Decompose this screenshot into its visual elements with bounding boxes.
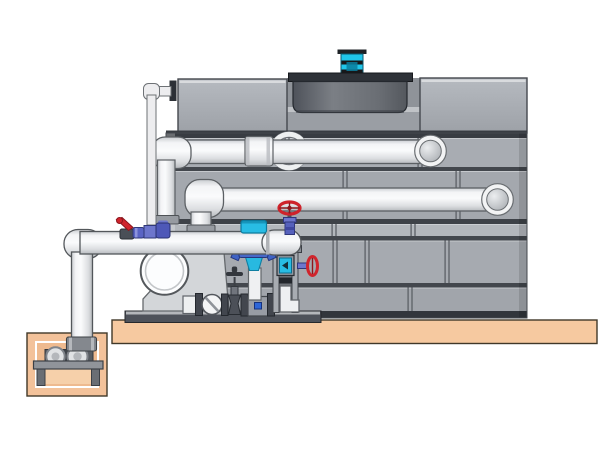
- fan-shroud: [293, 82, 407, 113]
- header-barrel: [80, 232, 280, 255]
- tower-upper-right-panel: [420, 78, 527, 133]
- handwheel-hub: [287, 206, 291, 210]
- fan-assembly: [289, 50, 413, 114]
- flange-c: [241, 294, 248, 316]
- cap-ridge: [266, 231, 270, 255]
- union-ridge-right: [267, 137, 271, 166]
- valve-stem: [234, 277, 236, 287]
- lower-pipe-barrel: [205, 188, 493, 211]
- upper-pipe-tank-elbow: [415, 135, 447, 167]
- lower-pipe-tank-elbow: [482, 184, 514, 216]
- seam-top: [166, 131, 527, 139]
- lip-1: [166, 138, 527, 139]
- sump-motor-hub: [52, 353, 60, 361]
- tower-upper-left-panel: [178, 79, 287, 133]
- elbow-dome: [420, 140, 442, 162]
- fitting-1-band: [135, 228, 138, 238]
- discharge-stub: [183, 296, 196, 314]
- coupling-ridge-r: [91, 338, 94, 351]
- seam-1: [166, 167, 527, 171]
- elbow-dome: [487, 189, 509, 211]
- cap-valve-waist: [285, 227, 295, 230]
- tap-handle-nub: [232, 267, 237, 273]
- coupling-ridge-l: [69, 338, 72, 351]
- diffuser-drop-pipe: [249, 268, 262, 300]
- motor-stripe-cyan-top: [341, 54, 363, 61]
- ground: [27, 320, 597, 396]
- platform-leg-right: [92, 369, 100, 386]
- sump-riser-pipe: [72, 252, 93, 344]
- fan-shroud-shadow: [296, 110, 404, 113]
- platform-leg-left: [37, 369, 45, 386]
- column-slot: [279, 278, 292, 284]
- tap-handle-bar: [226, 272, 243, 276]
- upper-left-highlight: [180, 81, 286, 84]
- gate-valve-body: [229, 295, 241, 315]
- fitting-3: [156, 223, 170, 238]
- riser-drop-1: [158, 160, 176, 218]
- motor-center: [347, 62, 358, 71]
- illustration-canvas: [0, 0, 600, 450]
- valve-bonnet: [231, 287, 238, 296]
- tee-indicator: [255, 303, 262, 310]
- ball-valve-body: [120, 229, 134, 239]
- lever-knob: [117, 218, 123, 224]
- actuator-cap-line: [241, 221, 267, 224]
- riser-drop-2: [191, 212, 211, 226]
- seam-2: [166, 219, 527, 224]
- lip-3: [166, 224, 527, 225]
- sump-pump-hub: [73, 352, 81, 360]
- sump-pit-backwall: [45, 369, 94, 384]
- union-ridge-left: [246, 137, 250, 166]
- upper-pipe-barrel: [168, 140, 426, 164]
- pump-platform: [34, 361, 104, 369]
- upper-right-highlight: [422, 80, 526, 83]
- tower-right-edge: [519, 133, 527, 318]
- fan-shroud-flange: [289, 73, 413, 82]
- overflow-down-pipe: [147, 95, 156, 225]
- concrete-slab: [112, 320, 597, 344]
- fitting-1: [133, 228, 144, 239]
- motor-top-bar: [338, 50, 367, 55]
- flange-b: [222, 294, 229, 316]
- fitting-2: [144, 226, 156, 239]
- fan-recess-lower: [287, 112, 420, 133]
